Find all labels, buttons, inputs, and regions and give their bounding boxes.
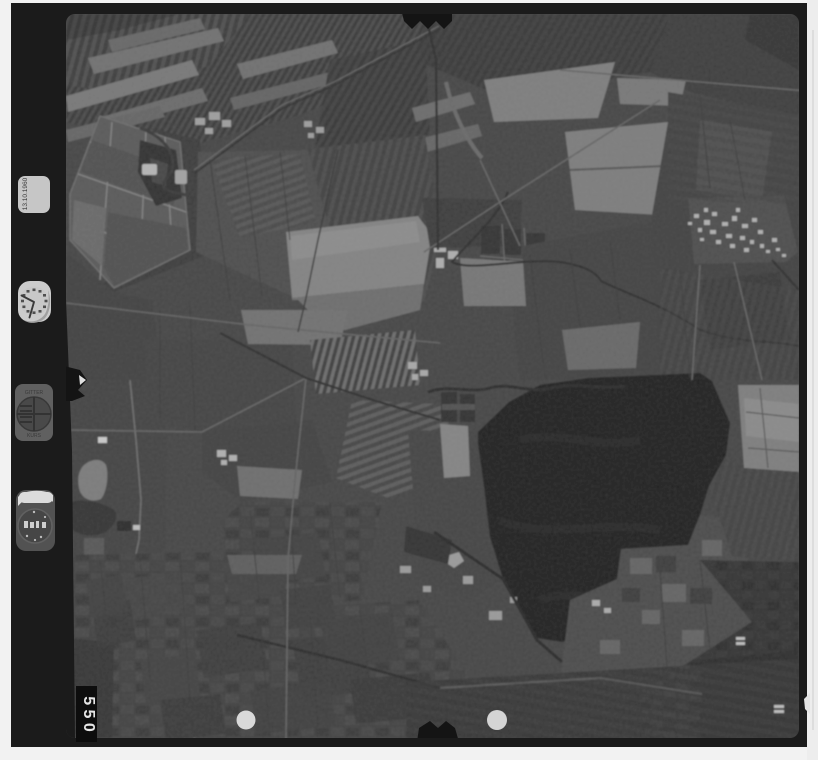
svg-text:13.10.1960: 13.10.1960: [22, 177, 29, 210]
svg-text:GITTER: GITTER: [25, 390, 44, 396]
svg-text:KURS: KURS: [27, 433, 42, 439]
svg-text:5 5 0: 5 5 0: [80, 696, 97, 732]
